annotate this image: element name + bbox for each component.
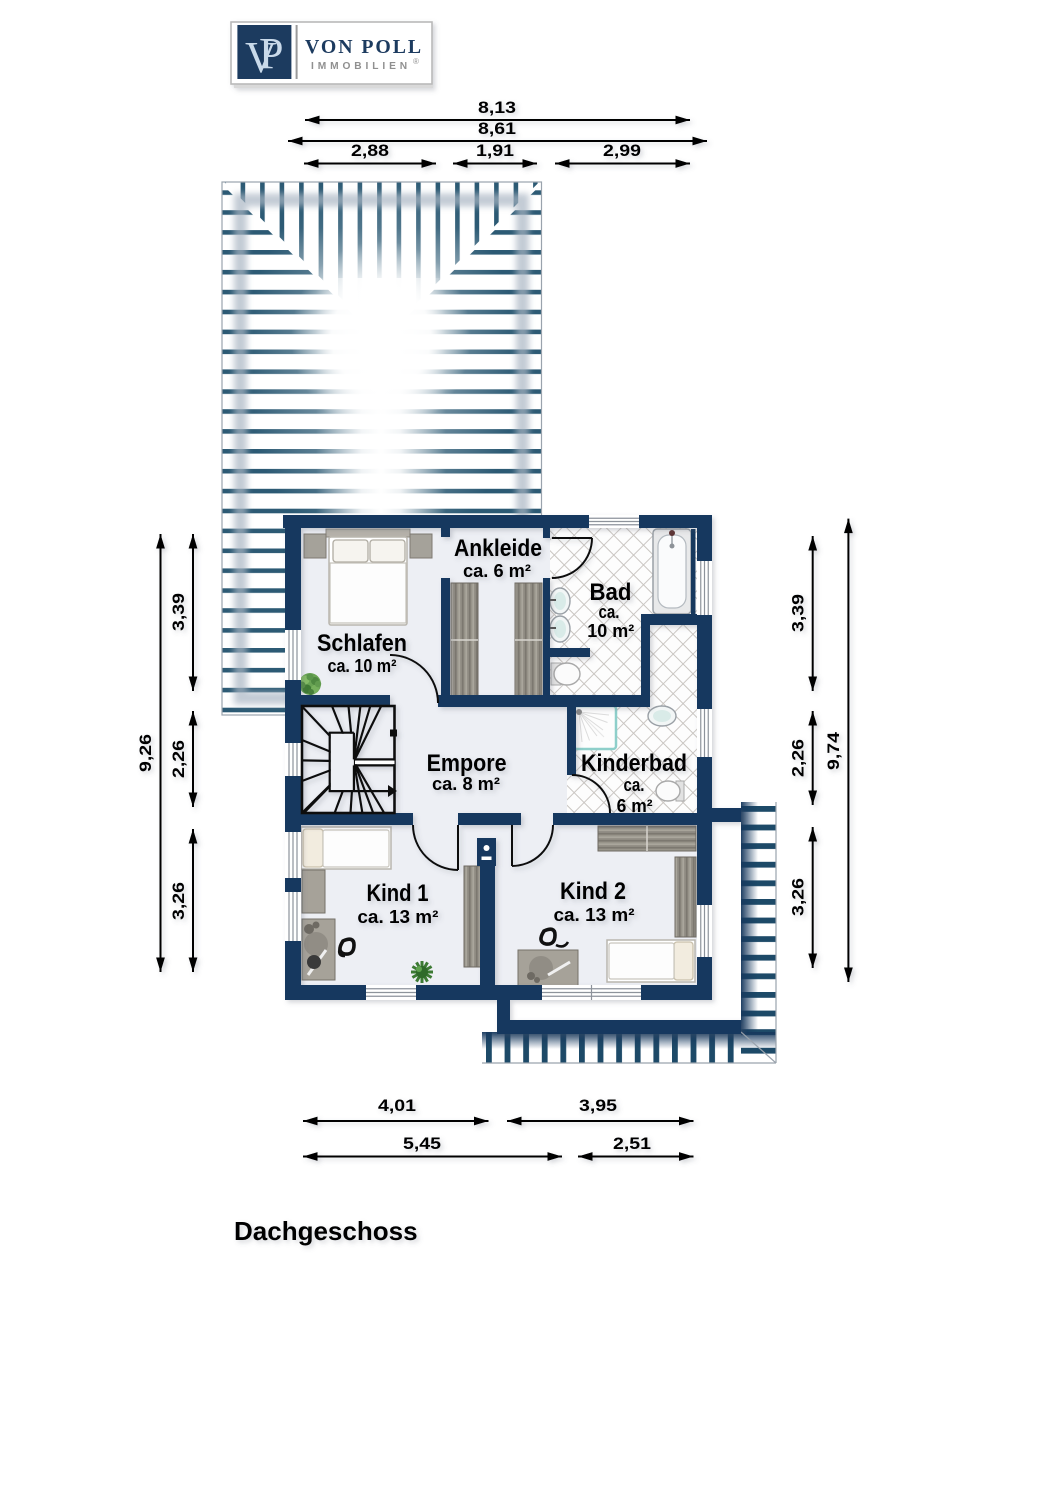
svg-text:9,74: 9,74 xyxy=(825,731,843,770)
svg-text:5,45: 5,45 xyxy=(403,1135,441,1153)
svg-text:Kinderbad: Kinderbad xyxy=(581,750,687,777)
svg-text:Ankleide: Ankleide xyxy=(454,535,542,562)
svg-text:Empore: Empore xyxy=(427,750,507,777)
svg-text:ca. 13 m²: ca. 13 m² xyxy=(357,907,438,927)
svg-text:ca. 13 m²: ca. 13 m² xyxy=(554,905,635,925)
svg-text:3,95: 3,95 xyxy=(579,1097,617,1115)
svg-text:1,91: 1,91 xyxy=(476,142,514,160)
svg-text:2,26: 2,26 xyxy=(170,740,188,778)
svg-text:2,51: 2,51 xyxy=(613,1135,651,1153)
svg-text:6 m²: 6 m² xyxy=(617,796,653,816)
svg-text:ca. 8 m²: ca. 8 m² xyxy=(432,774,500,794)
svg-text:2,88: 2,88 xyxy=(351,142,389,160)
svg-text:2,99: 2,99 xyxy=(603,142,641,160)
svg-text:10 m²: 10 m² xyxy=(587,621,634,641)
svg-text:3,26: 3,26 xyxy=(170,882,188,920)
svg-text:3,26: 3,26 xyxy=(790,878,808,916)
svg-text:VON POLL: VON POLL xyxy=(305,36,423,58)
svg-text:P: P xyxy=(259,29,283,78)
svg-text:Kind 2: Kind 2 xyxy=(560,878,626,905)
svg-text:ca.: ca. xyxy=(599,602,620,622)
svg-text:3,39: 3,39 xyxy=(790,594,808,632)
svg-text:Kind 1: Kind 1 xyxy=(367,880,429,907)
svg-text:Schlafen: Schlafen xyxy=(317,630,407,657)
svg-text:3,39: 3,39 xyxy=(170,593,188,631)
svg-text:ca. 6 m²: ca. 6 m² xyxy=(463,561,531,581)
svg-text:®: ® xyxy=(413,57,419,66)
svg-text:4,01: 4,01 xyxy=(378,1097,416,1115)
svg-text:ca. 10 m²: ca. 10 m² xyxy=(328,656,397,676)
svg-text:IMMOBILIEN: IMMOBILIEN xyxy=(311,60,411,72)
svg-text:Dachgeschoss: Dachgeschoss xyxy=(234,1216,418,1246)
svg-text:ca.: ca. xyxy=(624,775,645,795)
svg-text:8,13: 8,13 xyxy=(478,99,516,117)
svg-text:9,26: 9,26 xyxy=(137,734,155,772)
svg-text:8,61: 8,61 xyxy=(478,120,516,138)
svg-text:2,26: 2,26 xyxy=(790,739,808,777)
